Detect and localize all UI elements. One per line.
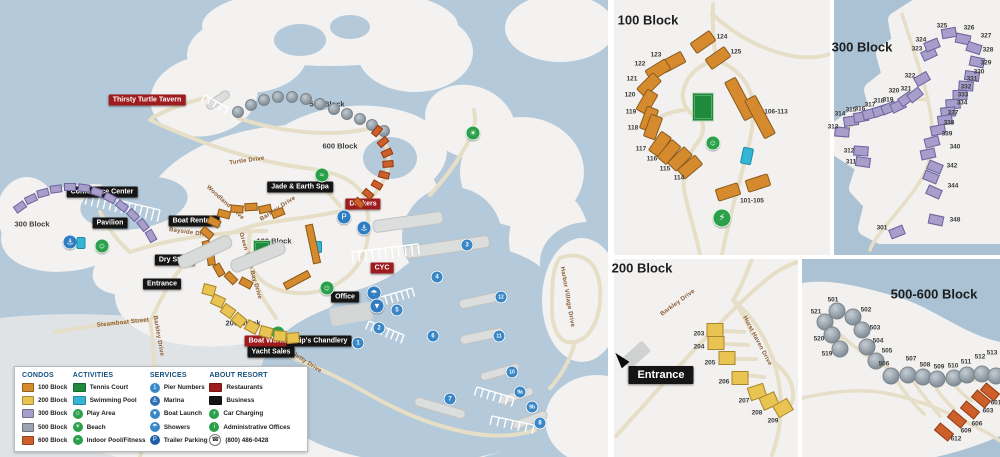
inset-title: 200 Block (612, 261, 673, 276)
car-charging-icon: ⚡ (209, 409, 219, 419)
legend-item-label: Swimming Pool (90, 397, 137, 404)
cluster-building (381, 148, 394, 159)
cluster-building (78, 183, 91, 193)
pier-number: 3 (461, 239, 474, 252)
unit-label: 123 (651, 52, 662, 59)
legend-item-label: (800) 486-0428 (225, 437, 268, 444)
pier-number: 9b (526, 401, 539, 414)
unit-label: 121 (627, 76, 638, 83)
pier-number: 1 (352, 337, 365, 350)
cluster-building (199, 226, 214, 240)
unit-label: 506 (879, 361, 890, 368)
legend-item: Tennis Court (73, 381, 150, 394)
legend-item-label: Beach (87, 424, 106, 431)
pier-number: 4 (431, 271, 444, 284)
unit-label: 348 (950, 217, 961, 224)
unit-label: 206 (719, 379, 730, 386)
cluster-building (300, 93, 312, 105)
unit-label: 606 (972, 421, 983, 428)
unit-range-label: 106-113 (764, 109, 788, 116)
unit-label: 208 (752, 410, 763, 417)
unit-label: 337 (948, 110, 959, 117)
legend-item-label: Marina (164, 397, 184, 404)
inset-title: 300 Block (832, 40, 893, 55)
cluster-building (370, 179, 383, 191)
unit-building (853, 145, 869, 156)
legend-section-condos: CONDOS100 Block200 Block300 Block500 Blo… (22, 372, 73, 447)
beach-icon: ☀ (73, 422, 83, 432)
legend-item-label: Showers (164, 424, 190, 431)
-800-486-0428-icon: ☎ (209, 434, 221, 446)
unit-label: 323 (912, 46, 923, 53)
business-label: Office (331, 292, 359, 303)
pier-number: 6 (427, 330, 440, 343)
unit-building (855, 156, 871, 168)
unit-label: 209 (768, 418, 779, 425)
300-block-icon (22, 409, 34, 418)
car-charging-icon: ⚡ (713, 209, 732, 228)
unit-label: 509 (934, 364, 945, 371)
legend-item: 300 Block (22, 407, 73, 420)
cluster-building (145, 229, 158, 243)
unit-building (745, 173, 772, 193)
pier-number: 11 (493, 330, 506, 343)
unit-label: 342 (947, 163, 958, 170)
unit-building (920, 148, 937, 161)
unit-label: 203 (694, 331, 705, 338)
play-area-icon: ☺ (320, 281, 335, 296)
cluster-building (286, 332, 300, 344)
road-label: Steamboat Street (97, 317, 150, 328)
legend-item-label: 300 Block (38, 410, 67, 417)
fitness-icon: ≈ (315, 168, 330, 183)
pier-number: 5 (391, 304, 404, 317)
cluster-building (354, 113, 366, 125)
cluster-building (258, 94, 270, 106)
legend-item: Business (209, 394, 303, 407)
unit-label: 115 (660, 166, 671, 173)
legend-item: 600 Block (22, 434, 73, 447)
beach-icon: ☀ (466, 126, 481, 141)
unit-label: 119 (626, 109, 637, 116)
unit-building (928, 214, 945, 227)
unit-label: 319 (883, 97, 894, 104)
legend-item: PTrailer Parking (150, 434, 210, 447)
unit-label: 501 (828, 297, 839, 304)
play-area-icon: ☺ (95, 239, 110, 254)
unit-label: 311 (846, 159, 857, 166)
legend-item-label: 600 Block (38, 437, 67, 444)
unit-label: 326 (964, 25, 975, 32)
unit-label: 338 (944, 120, 955, 127)
unit-building (988, 368, 1000, 385)
resort-map: 500 Block600 Block300 Block100 Block200 … (0, 0, 1000, 457)
legend-item: ≈Indoor Pool/Fitness (73, 434, 150, 447)
legend-item: 100 Block (22, 381, 73, 394)
unit-label: 320 (889, 88, 900, 95)
legend-item: Restaurants (209, 381, 303, 394)
legend-section-services: SERVICES1Pier Numbers⚓Marina▼Boat Launch… (150, 372, 210, 447)
cluster-building (283, 270, 311, 290)
unit-building (925, 184, 943, 199)
business-icon (209, 396, 222, 405)
tennis-court (692, 93, 714, 122)
pier-number: 10 (506, 366, 519, 379)
unit-building (913, 71, 931, 87)
marina-icon: ⚓ (63, 235, 78, 250)
unit-label: 612 (951, 436, 962, 443)
swimming-pool (740, 147, 754, 166)
unit-label: 328 (983, 47, 994, 54)
unit-building (924, 135, 941, 148)
unit-label: 120 (625, 92, 636, 99)
legend-item-label: Business (226, 397, 254, 404)
road-label: Turtle Drive (229, 156, 265, 167)
cluster-building (272, 91, 284, 103)
unit-label: 331 (967, 76, 978, 83)
unit-label: 333 (958, 92, 969, 99)
legend-item: iAdministrative Offices (209, 421, 303, 434)
inset-title: 100 Block (618, 13, 679, 28)
unit-building (854, 322, 871, 339)
restaurant-label: CYC (371, 263, 394, 274)
legend-item-label: Indoor Pool/Fitness (87, 437, 146, 444)
boat-launch-icon: ▼ (150, 409, 160, 419)
legend-item: ☀Beach (73, 421, 150, 434)
business-label: Yacht Sales (248, 347, 295, 358)
unit-label: 125 (731, 49, 742, 56)
business-label: Pavilion (93, 218, 128, 229)
cluster-building (382, 160, 394, 168)
legend-item: ☎(800) 486-0428 (209, 434, 303, 447)
unit-label: 327 (981, 33, 992, 40)
legend-item-label: Car Charging (223, 410, 263, 417)
unit-label: 204 (694, 344, 705, 351)
pier-number: 9a (514, 386, 527, 399)
unit-building (689, 30, 716, 54)
unit-label: 330 (974, 69, 985, 76)
unit-building (965, 41, 982, 55)
200-block-icon (22, 396, 34, 405)
cluster-building (314, 98, 326, 110)
unit-label: 207 (739, 398, 750, 405)
trailer-parking-icon: P (337, 210, 352, 225)
unit-label: 520 (814, 336, 825, 343)
unit-label: 124 (717, 34, 728, 41)
legend-item: 1Pier Numbers (150, 381, 210, 394)
cluster-building (232, 106, 244, 118)
cluster-building (328, 103, 340, 115)
play-area-icon: ☺ (73, 409, 83, 419)
entrance-label: Entrance (628, 366, 693, 384)
map-legend: CONDOS100 Block200 Block300 Block500 Blo… (14, 366, 308, 452)
cluster-building (230, 204, 244, 213)
tennis-court-icon (73, 383, 86, 392)
cluster-building (244, 203, 257, 212)
restaurant-label: Thirsty Turtle Tavern (109, 95, 186, 106)
unit-label: 511 (961, 359, 972, 366)
cluster-building (378, 170, 390, 180)
unit-label: 329 (981, 60, 992, 67)
unit-label: 334 (957, 100, 968, 107)
unit-label: 322 (905, 73, 916, 80)
legend-item-label: Boat Launch (164, 410, 202, 417)
unit-building (704, 46, 731, 70)
legend-item-label: Trailer Parking (164, 437, 208, 444)
500-block-icon (22, 423, 34, 432)
showers-icon: ☂ (150, 422, 160, 432)
unit-building (715, 182, 742, 202)
block-label: 600 Block (322, 142, 357, 151)
unit-label: 502 (861, 307, 872, 314)
boat-launch-icon: ▼ (370, 299, 385, 314)
cluster-building (341, 108, 353, 120)
unit-label: 301 (877, 225, 888, 232)
legend-item: ⚡Car Charging (209, 407, 303, 420)
legend-item: 200 Block (22, 394, 73, 407)
administrative-offices-icon: i (209, 422, 219, 432)
road-label: Hurst Haven Drive (741, 315, 772, 367)
legend-section-title: ACTIVITIES (73, 372, 150, 379)
unit-label: 521 (811, 309, 822, 316)
road-label: Harbor Village Drive (559, 266, 576, 327)
unit-label: 513 (987, 350, 998, 357)
legend-item-label: Tennis Court (90, 384, 128, 391)
unit-label: 312 (844, 148, 855, 155)
legend-item: Swimming Pool (73, 394, 150, 407)
unit-label: 314 (835, 111, 846, 118)
cluster-building (64, 183, 76, 191)
legend-section-about-resort: ABOUT RESORTRestaurantsBusiness⚡Car Char… (209, 372, 303, 447)
unit-label: 313 (828, 124, 839, 131)
marina-icon: ⚓ (357, 221, 372, 236)
cluster-building (245, 99, 257, 111)
trailer-parking-icon: P (150, 435, 160, 445)
cluster-building (286, 91, 298, 103)
pier-number: 8 (534, 417, 547, 430)
legend-item: ⚓Marina (150, 394, 210, 407)
cluster-building (24, 193, 38, 205)
unit-building (883, 368, 900, 385)
pier-number: 7 (444, 393, 457, 406)
legend-item-label: Administrative Offices (223, 424, 290, 431)
legend-item: 500 Block (22, 421, 73, 434)
unit-label: 601 (991, 400, 1000, 407)
legend-section-activities: ACTIVITIESTennis CourtSwimming Pool☺Play… (73, 372, 150, 447)
unit-building (832, 341, 849, 358)
marina-icon: ⚓ (150, 396, 160, 406)
pier-numbers-icon: 1 (150, 383, 160, 393)
road-label: Barkley Drive (151, 315, 164, 356)
legend-item-label: Play Area (87, 410, 115, 417)
unit-label: 332 (961, 84, 972, 91)
unit-label: 508 (920, 362, 931, 369)
block-label: 300 Block (14, 220, 49, 229)
unit-label: 340 (950, 144, 961, 151)
unit-label: 603 (983, 408, 994, 415)
legend-item: ☂Showers (150, 421, 210, 434)
cluster-building (50, 184, 63, 194)
unit-label: 118 (628, 125, 639, 132)
600-block-icon (22, 436, 34, 445)
unit-label: 324 (916, 37, 927, 44)
swimming-pool-icon (73, 396, 86, 405)
cluster-building (273, 330, 287, 342)
legend-item-label: 500 Block (38, 424, 67, 431)
unit-label: 325 (937, 23, 948, 30)
restaurants-icon (209, 383, 222, 392)
unit-label: 512 (975, 354, 986, 361)
cluster-building (36, 188, 50, 199)
business-label: Entrance (143, 279, 181, 290)
legend-section-title: CONDOS (22, 372, 73, 379)
business-label: Jade & Earth Spa (267, 182, 333, 193)
unit-label: 339 (942, 131, 953, 138)
legend-item-label: Pier Numbers (164, 384, 205, 391)
inset-title: 500-600 Block (891, 287, 978, 302)
unit-label: 114 (674, 175, 685, 182)
legend-item-label: Restaurants (226, 384, 262, 391)
unit-building (708, 336, 725, 350)
unit-label: 609 (961, 428, 972, 435)
legend-item: ▼Boat Launch (150, 407, 210, 420)
unit-label: 321 (901, 86, 912, 93)
indoor-pool-fitness-icon: ≈ (73, 435, 83, 445)
legend-item: ☺Play Area (73, 407, 150, 420)
road-label: Barkley Drive (660, 289, 697, 318)
unit-building (719, 351, 736, 365)
legend-item-label: 200 Block (38, 397, 67, 404)
unit-label: 504 (873, 338, 884, 345)
unit-label: 344 (948, 183, 959, 190)
entrance-arrow-icon (611, 350, 629, 369)
unit-building (707, 323, 724, 337)
unit-label: 507 (906, 356, 917, 363)
pier-number: 2 (373, 322, 386, 335)
pier-number: 12 (495, 291, 508, 304)
legend-section-title: ABOUT RESORT (209, 372, 303, 379)
swimming-pool-marker (77, 237, 86, 249)
unit-label: 116 (647, 156, 658, 163)
unit-label: 205 (705, 360, 716, 367)
unit-range-label: 101-105 (740, 198, 764, 205)
unit-label: 505 (882, 348, 893, 355)
unit-label: 510 (948, 363, 959, 370)
cluster-building (176, 233, 234, 270)
100-block-icon (22, 383, 34, 392)
cluster-building (377, 136, 390, 148)
unit-building (929, 371, 946, 388)
unit-label: 519 (822, 351, 833, 358)
legend-item-label: 100 Block (38, 384, 67, 391)
play-area-icon: ☺ (706, 136, 721, 151)
unit-building (888, 225, 906, 240)
legend-section-title: SERVICES (150, 372, 210, 379)
unit-building (732, 371, 749, 385)
unit-label: 122 (635, 61, 646, 68)
unit-label: 117 (636, 146, 647, 153)
unit-label: 503 (870, 325, 881, 332)
